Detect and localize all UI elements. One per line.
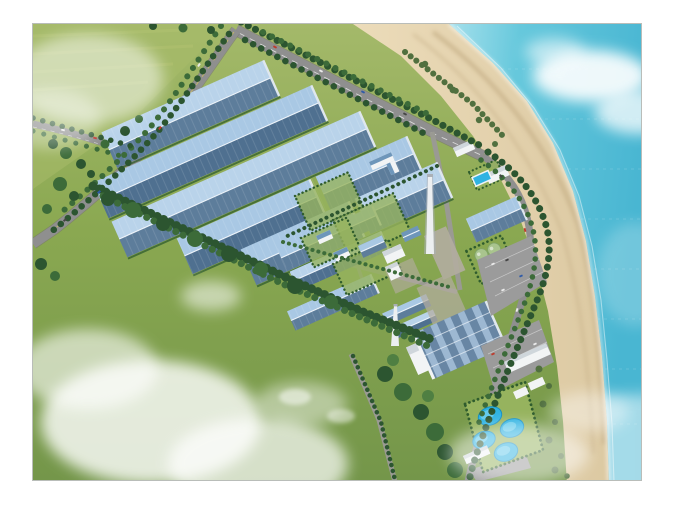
plant-aerial-rendering: Aerial architectural rendering of a coas…	[33, 24, 641, 480]
cloud	[525, 38, 585, 66]
cloud	[549, 392, 629, 432]
rendered-image-frame: Aerial architectural rendering of a coas…	[32, 23, 642, 481]
cloud-puff	[279, 389, 311, 405]
cloud	[181, 281, 241, 311]
cloud-puff	[327, 409, 355, 423]
